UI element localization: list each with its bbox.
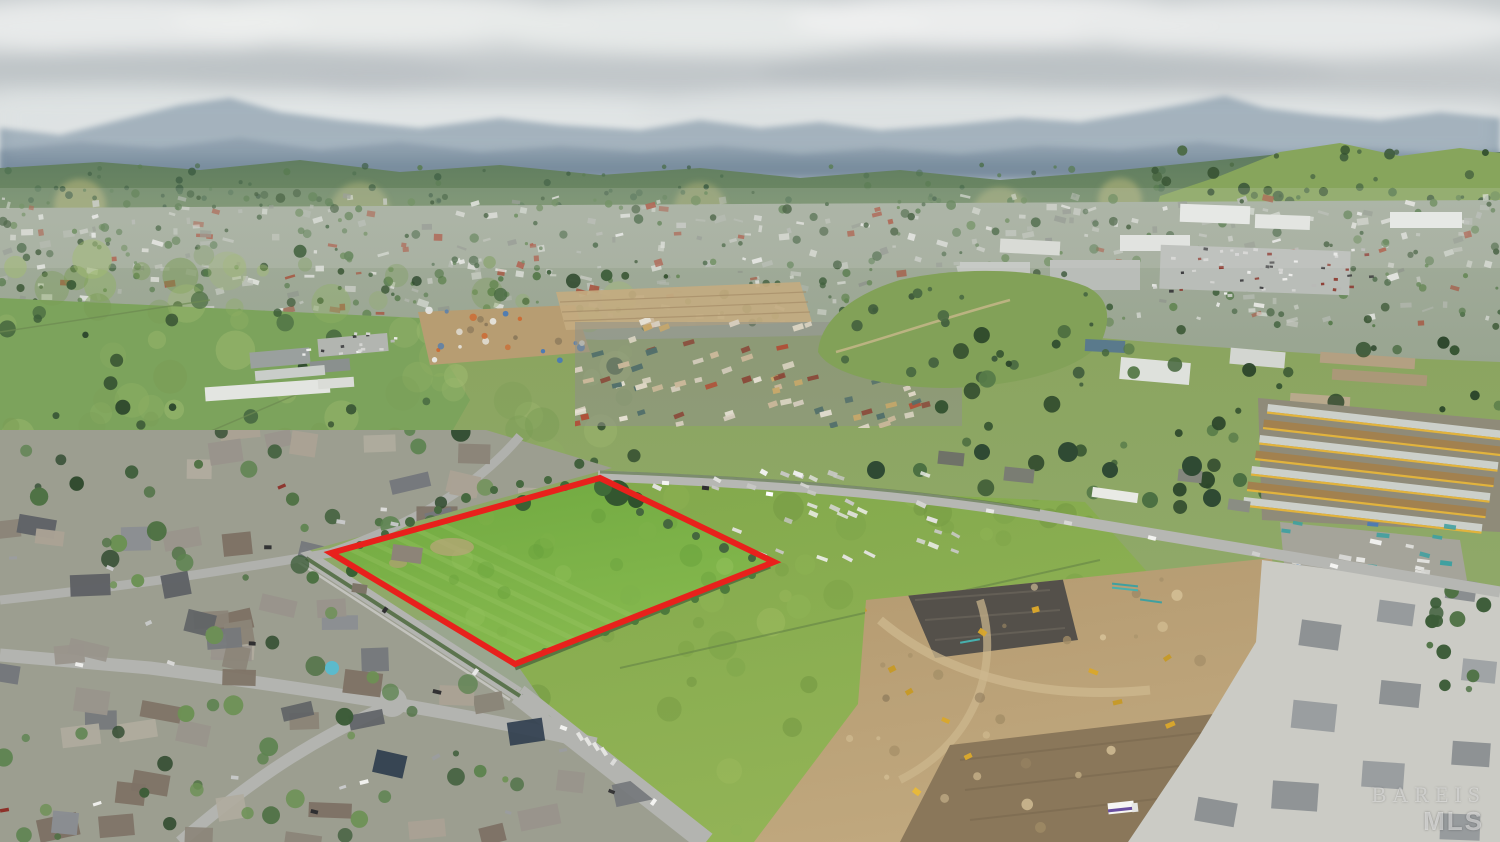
dirt-patch [430,538,474,556]
backyard-pool [325,661,339,675]
aerial-scene [0,0,1500,842]
storage-facility [1243,398,1500,534]
aerial-photo: BAREIS MLS [0,0,1500,842]
